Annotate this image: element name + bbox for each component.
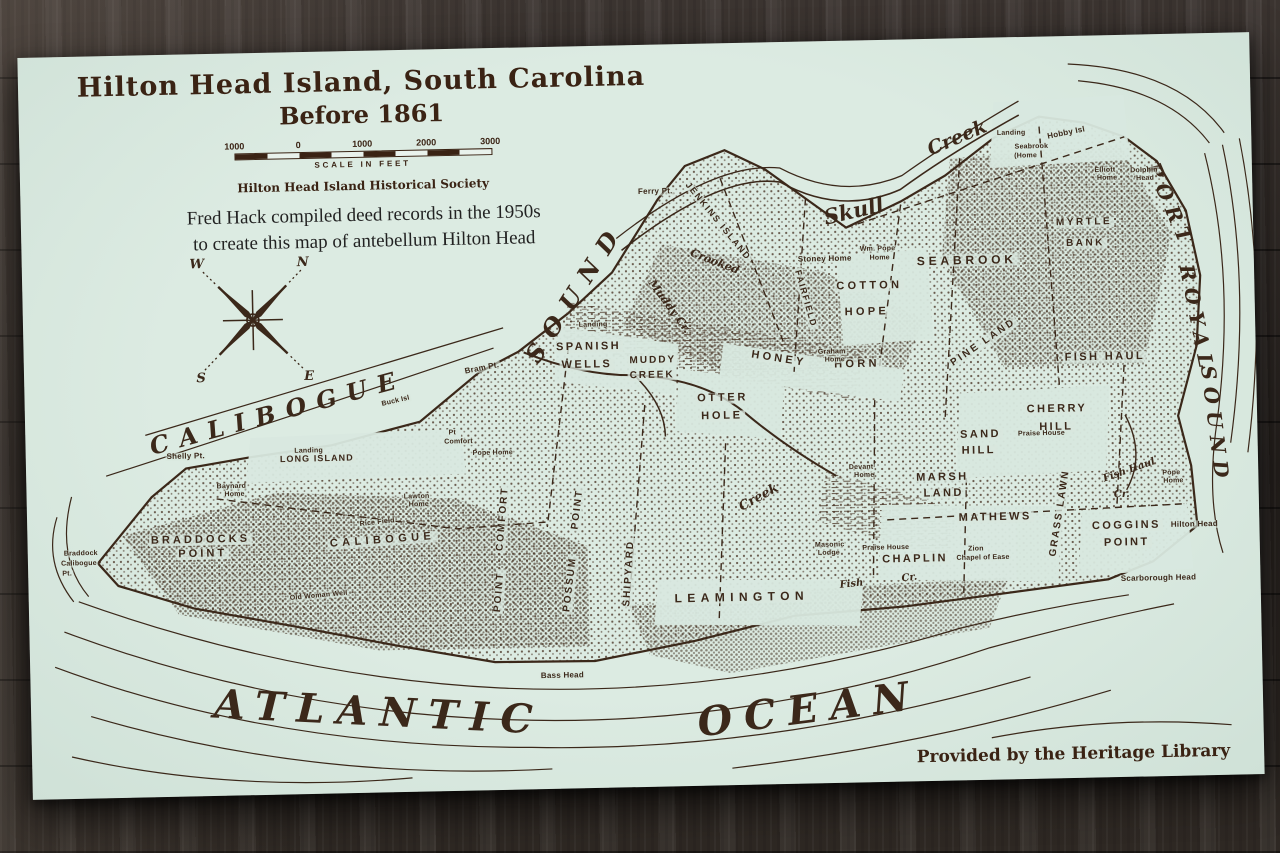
- map-label: Praise House: [1017, 430, 1066, 438]
- map-label: Crooked: [689, 247, 741, 276]
- map-label: LAND: [921, 488, 965, 500]
- map-label: POINT: [1102, 537, 1152, 549]
- map-label: Pope Home: [471, 449, 514, 457]
- map-label: PINE LAND: [947, 316, 1019, 369]
- map-label: HILL: [960, 445, 998, 457]
- map-label: POINT: [493, 569, 507, 614]
- map-label: Baynard: [216, 483, 248, 491]
- map-label: Home: [1162, 477, 1184, 484]
- map-label: POSSUM: [562, 554, 579, 614]
- map-label: Home: [869, 254, 891, 261]
- map-label: Bram Pt.: [463, 361, 501, 376]
- map-label: Home: [1096, 174, 1118, 181]
- map-label: Home: [824, 356, 846, 363]
- map-label: Lodge: [817, 549, 841, 557]
- map-label: Pt.: [61, 570, 73, 577]
- map-label: CHAPLIN: [880, 553, 950, 565]
- map-label: Old Woman Well: [289, 590, 349, 602]
- map-label: MATHEWS: [957, 511, 1034, 524]
- map-label: Lawton: [403, 493, 431, 501]
- map-label: POINT: [570, 487, 585, 532]
- map-label: Calibogue: [60, 560, 98, 568]
- map-label: LEAMINGTON: [672, 589, 811, 604]
- map-label: MUDDY: [627, 355, 678, 366]
- map-label: SAND: [958, 429, 1003, 441]
- map-label: Graham: [817, 348, 847, 356]
- map-label: Home: [408, 501, 430, 508]
- map-label: Braddock: [63, 550, 99, 558]
- map-label: Stoney Home: [797, 255, 853, 264]
- map-label: BANK: [1064, 238, 1107, 249]
- map-label: MARSH: [914, 472, 971, 484]
- map-label: Hilton Head: [1170, 520, 1219, 529]
- map-label: Pt: [448, 429, 458, 436]
- map-label: Skull: [822, 193, 886, 227]
- map-label: Muddy Cr.: [647, 278, 693, 335]
- map-label: COGGINS: [1090, 520, 1163, 533]
- map-label: Rice Field: [358, 517, 396, 528]
- map-label: FAIRFIELD: [793, 267, 819, 330]
- map-label: FISH HAUL: [1063, 351, 1148, 364]
- map-label: MYRTLE: [1054, 217, 1114, 228]
- map-label: BRADDOCKS: [149, 534, 252, 547]
- map-label: Cr.: [901, 573, 918, 585]
- map-label: GRASS LAWN: [1048, 467, 1072, 559]
- map-label: Landing: [996, 129, 1027, 137]
- map-label: (Home: [1013, 152, 1038, 160]
- map-label: CALIBOGUE: [147, 366, 408, 458]
- map-label: Home: [853, 472, 875, 479]
- map-label: Bass Head: [540, 671, 585, 680]
- map-label: Head: [1135, 175, 1155, 182]
- map-label: Scarborough Head: [1120, 573, 1198, 583]
- map-label: Fish Haul: [1102, 457, 1157, 484]
- map-label: SHIPYARD: [622, 538, 637, 609]
- map-labels-layer: CALIBOGUESOUNDATLANTICOCEANPORTROYALSOUN…: [17, 32, 1264, 800]
- map-label: ATLANTIC: [213, 684, 545, 740]
- map-label: HOPE: [843, 306, 892, 318]
- map-label: Wm. Pope: [859, 245, 897, 253]
- map-label: COTTON: [834, 280, 904, 292]
- map-label: SPANISH: [554, 341, 623, 353]
- map-label: Shelly Pt.: [165, 452, 206, 461]
- map-label: HOLE: [699, 410, 745, 422]
- map-label: SOUND: [1198, 364, 1233, 485]
- map-label: LONG ISLAND: [278, 453, 356, 464]
- map-label: Creek: [925, 117, 990, 159]
- map-label: Cr.: [1114, 490, 1130, 500]
- map-label: Chapel of Ease: [955, 554, 1010, 562]
- map-label: CHERRY: [1025, 403, 1090, 415]
- map-label: Comfort: [443, 438, 474, 446]
- map-label: Praise House: [861, 544, 910, 552]
- map-label: WELLS: [560, 359, 615, 371]
- map-label: CALIBOGUE: [327, 531, 437, 550]
- map-label: Hobby Isl: [1046, 125, 1087, 141]
- map-label: COMFORT: [495, 484, 511, 553]
- map-label: Zion: [967, 545, 985, 552]
- map-label: SEABROOK: [915, 253, 1019, 267]
- map-label: Elliott: [1093, 166, 1116, 173]
- map-label: Ferry Pt.: [637, 187, 674, 196]
- map-label: Seabrook: [1014, 143, 1050, 151]
- map-label: OTTER: [695, 392, 750, 404]
- map-label: CREEK: [628, 370, 677, 381]
- map-label: Fish: [839, 578, 864, 591]
- wood-background: { "colors":{"paper":"#d6e7de","ink":"#3b…: [0, 0, 1280, 853]
- map-label: Masonic: [814, 541, 846, 549]
- map-label: Home: [223, 491, 245, 498]
- map-label: HONEY: [749, 349, 810, 369]
- map-label: Devant: [848, 464, 875, 472]
- map-label: Creek: [737, 481, 781, 513]
- map-label: OCEAN: [695, 676, 923, 744]
- map-label: Pope: [1161, 469, 1181, 476]
- map-label: POINT: [176, 548, 229, 560]
- map-label: ROYAL: [1176, 263, 1217, 376]
- map-label: Landing: [578, 321, 609, 329]
- map-label: Landing: [293, 447, 324, 455]
- map-label: Dolphin: [1129, 167, 1159, 175]
- map-sheet: Hilton Head Island, South Carolina Befor…: [17, 32, 1264, 800]
